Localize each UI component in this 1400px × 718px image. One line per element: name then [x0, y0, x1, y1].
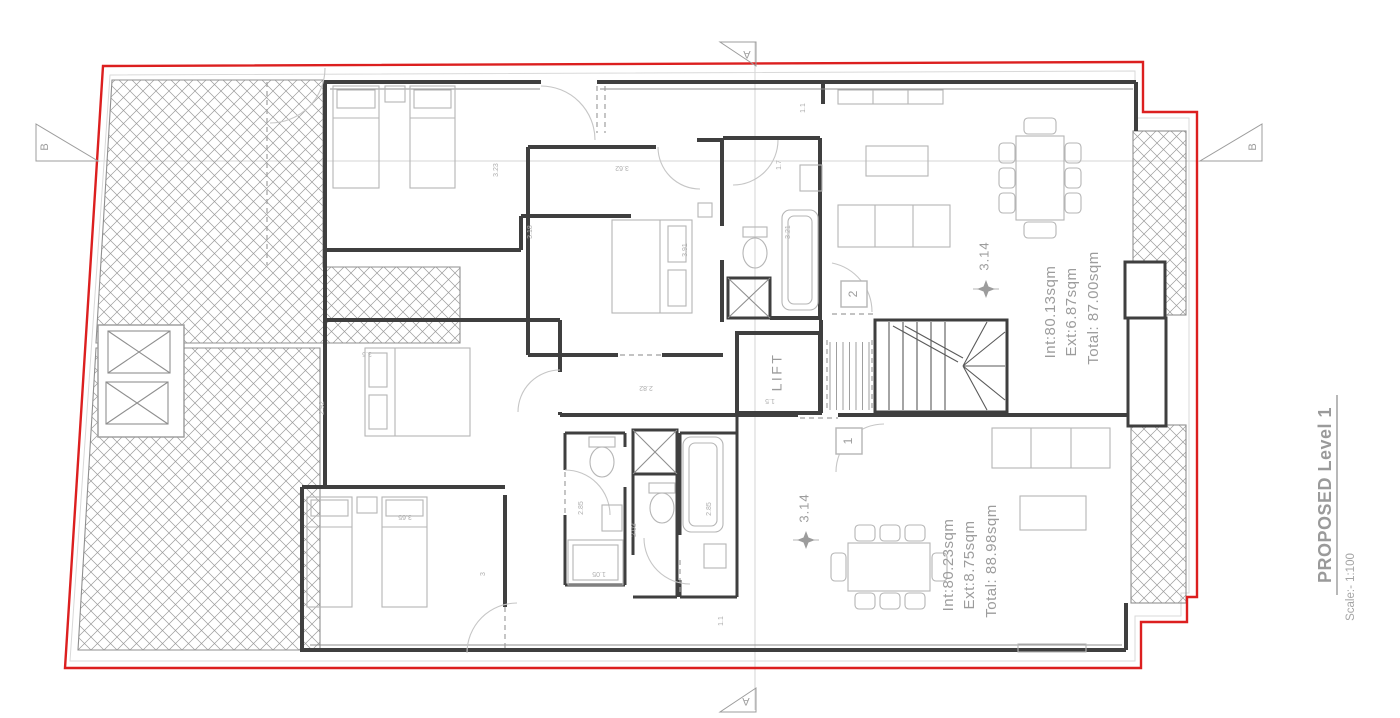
sofa — [838, 205, 950, 247]
dimension-label: 3.91 — [682, 243, 689, 257]
sink — [704, 544, 726, 568]
shower-tray — [568, 540, 623, 585]
section-marker-a-top-label: A — [743, 48, 751, 60]
apartment-2-spot-level: 3.14 — [976, 241, 991, 270]
floor-plan-drawing: LIFT 2 Int:80.13sqm Ext:6.87sqm Total: 8… — [0, 0, 1400, 718]
title-block: PROPOSED Level 1 Scale:- 1:100 — [1315, 395, 1357, 621]
dimension-label: 3 — [480, 572, 487, 576]
kitchen-counter — [838, 90, 943, 104]
section-marker-b-left: B — [36, 124, 98, 161]
dining-table — [831, 525, 947, 609]
section-marker-b-left-label: B — [39, 143, 51, 150]
section-marker-b-right: B — [1200, 124, 1262, 161]
floor-plan-page: LIFT 2 Int:80.13sqm Ext:6.87sqm Total: 8… — [0, 0, 1400, 718]
apartment-1-annotations: 1 Int:80.23sqm Ext:8.75sqm Total: 88.98s… — [793, 428, 1000, 618]
bed — [333, 86, 379, 188]
sink — [602, 505, 622, 531]
apartment-1-spot-level: 3.14 — [796, 493, 811, 522]
apartment-2-annotations: 2 Int:80.13sqm Ext:6.87sqm Total: 87.00s… — [841, 241, 1102, 364]
apartment-2-area-total: Total: 87.00sqm — [1085, 251, 1102, 364]
dining-table — [999, 118, 1081, 238]
dimension-label: 2.82 — [639, 384, 653, 391]
dimension-label: 2.92 — [319, 401, 326, 415]
coffee-table — [1020, 496, 1086, 530]
stair-treads — [830, 322, 1005, 410]
dimension-label: 1.1 — [718, 616, 725, 626]
dimension-label: 3.23 — [493, 163, 500, 177]
dimension-label: 2.85 — [706, 502, 713, 516]
section-marker-a-bottom-label: A — [742, 695, 750, 707]
drawing-scale: Scale:- 1:100 — [1345, 553, 1357, 621]
drawing-title: PROPOSED Level 1 — [1315, 407, 1335, 583]
apartment-2-area-int: Int:80.13sqm — [1042, 266, 1059, 359]
dimension-label: 3.65 — [398, 513, 412, 520]
walls — [302, 82, 1166, 652]
door-arcs — [270, 68, 884, 653]
bed — [365, 348, 470, 436]
toilet — [589, 437, 615, 477]
nightstand — [357, 497, 377, 513]
spot-level-icon — [793, 531, 819, 549]
dimension-label: 3.21 — [785, 225, 792, 239]
apartment-1-area-int: Int:80.23sqm — [940, 519, 957, 612]
apartment-1-area-total: Total: 88.98sqm — [983, 504, 1000, 617]
side-table — [698, 203, 712, 217]
terrace-hatch — [78, 80, 1186, 650]
section-marker-b-right-label: B — [1247, 143, 1259, 150]
dimension-label: 1.7 — [776, 160, 783, 170]
spot-level-icon — [973, 280, 999, 298]
bathtub — [782, 210, 818, 310]
apartment-2-area-ext: Ext:6.87sqm — [1063, 268, 1080, 357]
sofa — [992, 428, 1110, 468]
dimension-label: 2.03 — [631, 523, 638, 537]
apartment-1-area-ext: Ext:8.75sqm — [961, 521, 978, 610]
section-marker-a-bottom: A — [720, 688, 756, 712]
dimension-label: 1.05 — [592, 570, 606, 577]
dimension-label: 3.18 — [527, 225, 534, 239]
dimension-label: 1.1 — [800, 103, 807, 113]
apartment-1-badge-label: 1 — [841, 437, 855, 444]
terrace-planters — [98, 325, 184, 437]
bathtub — [683, 437, 723, 532]
dimension-label: 1.5 — [765, 397, 775, 404]
dimension-label: 3.62 — [615, 164, 629, 171]
apartment-2-badge-label: 2 — [846, 290, 860, 297]
bed — [612, 220, 692, 313]
dimension-label: 3.5 — [362, 350, 372, 357]
toilet — [649, 483, 675, 523]
lift-label: LIFT — [769, 353, 785, 392]
nightstand — [385, 86, 405, 102]
dimension-label: 2.85 — [578, 501, 585, 515]
bed — [410, 86, 455, 188]
dimension-labels: 3.53.233.183.623.912.821.71.13.212.851.0… — [319, 103, 807, 626]
